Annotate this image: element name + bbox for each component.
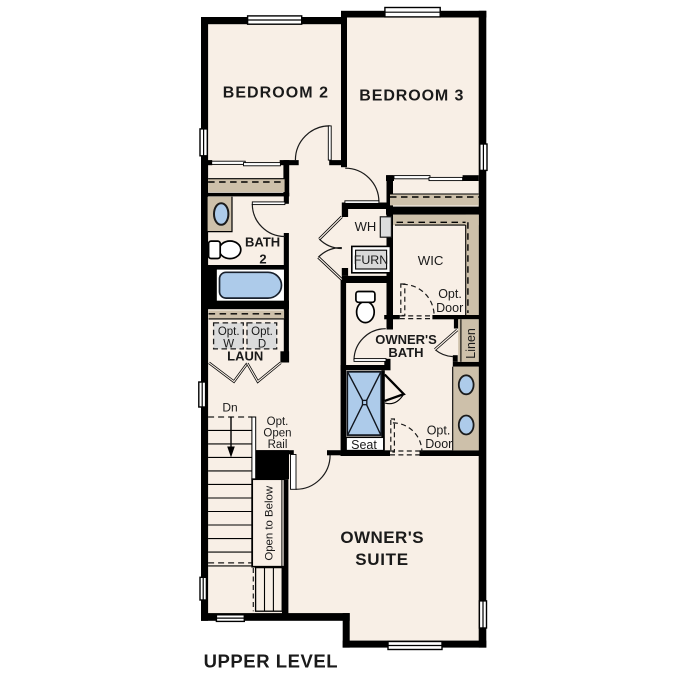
svg-text:LAUN: LAUN [227, 349, 263, 364]
svg-text:FURN: FURN [354, 253, 388, 267]
svg-text:Opt.: Opt. [251, 326, 273, 338]
svg-text:BEDROOM 2: BEDROOM 2 [223, 84, 329, 101]
svg-text:Opt.: Opt. [427, 423, 451, 437]
svg-text:Open to Below: Open to Below [264, 485, 276, 560]
svg-text:SUITE: SUITE [355, 550, 409, 569]
svg-text:Linen: Linen [464, 328, 478, 359]
svg-text:UPPER LEVEL: UPPER LEVEL [204, 651, 339, 672]
svg-text:BEDROOM 3: BEDROOM 3 [359, 87, 464, 104]
svg-text:Dn: Dn [222, 400, 237, 414]
svg-text:Opt.: Opt. [438, 287, 462, 301]
svg-text:WIC: WIC [418, 253, 444, 268]
svg-text:Seat: Seat [351, 438, 377, 452]
svg-text:Opt.: Opt. [267, 416, 289, 428]
svg-text:Door: Door [425, 437, 452, 451]
svg-text:Opt.: Opt. [218, 326, 240, 338]
svg-text:WH: WH [355, 219, 377, 234]
svg-text:BATH: BATH [388, 345, 423, 360]
svg-text:2: 2 [259, 251, 266, 266]
svg-text:Rail: Rail [268, 439, 288, 451]
svg-text:BATH: BATH [245, 234, 280, 249]
svg-text:Open: Open [263, 428, 291, 440]
svg-text:Door: Door [436, 301, 463, 315]
svg-text:OWNER'S: OWNER'S [340, 528, 424, 547]
